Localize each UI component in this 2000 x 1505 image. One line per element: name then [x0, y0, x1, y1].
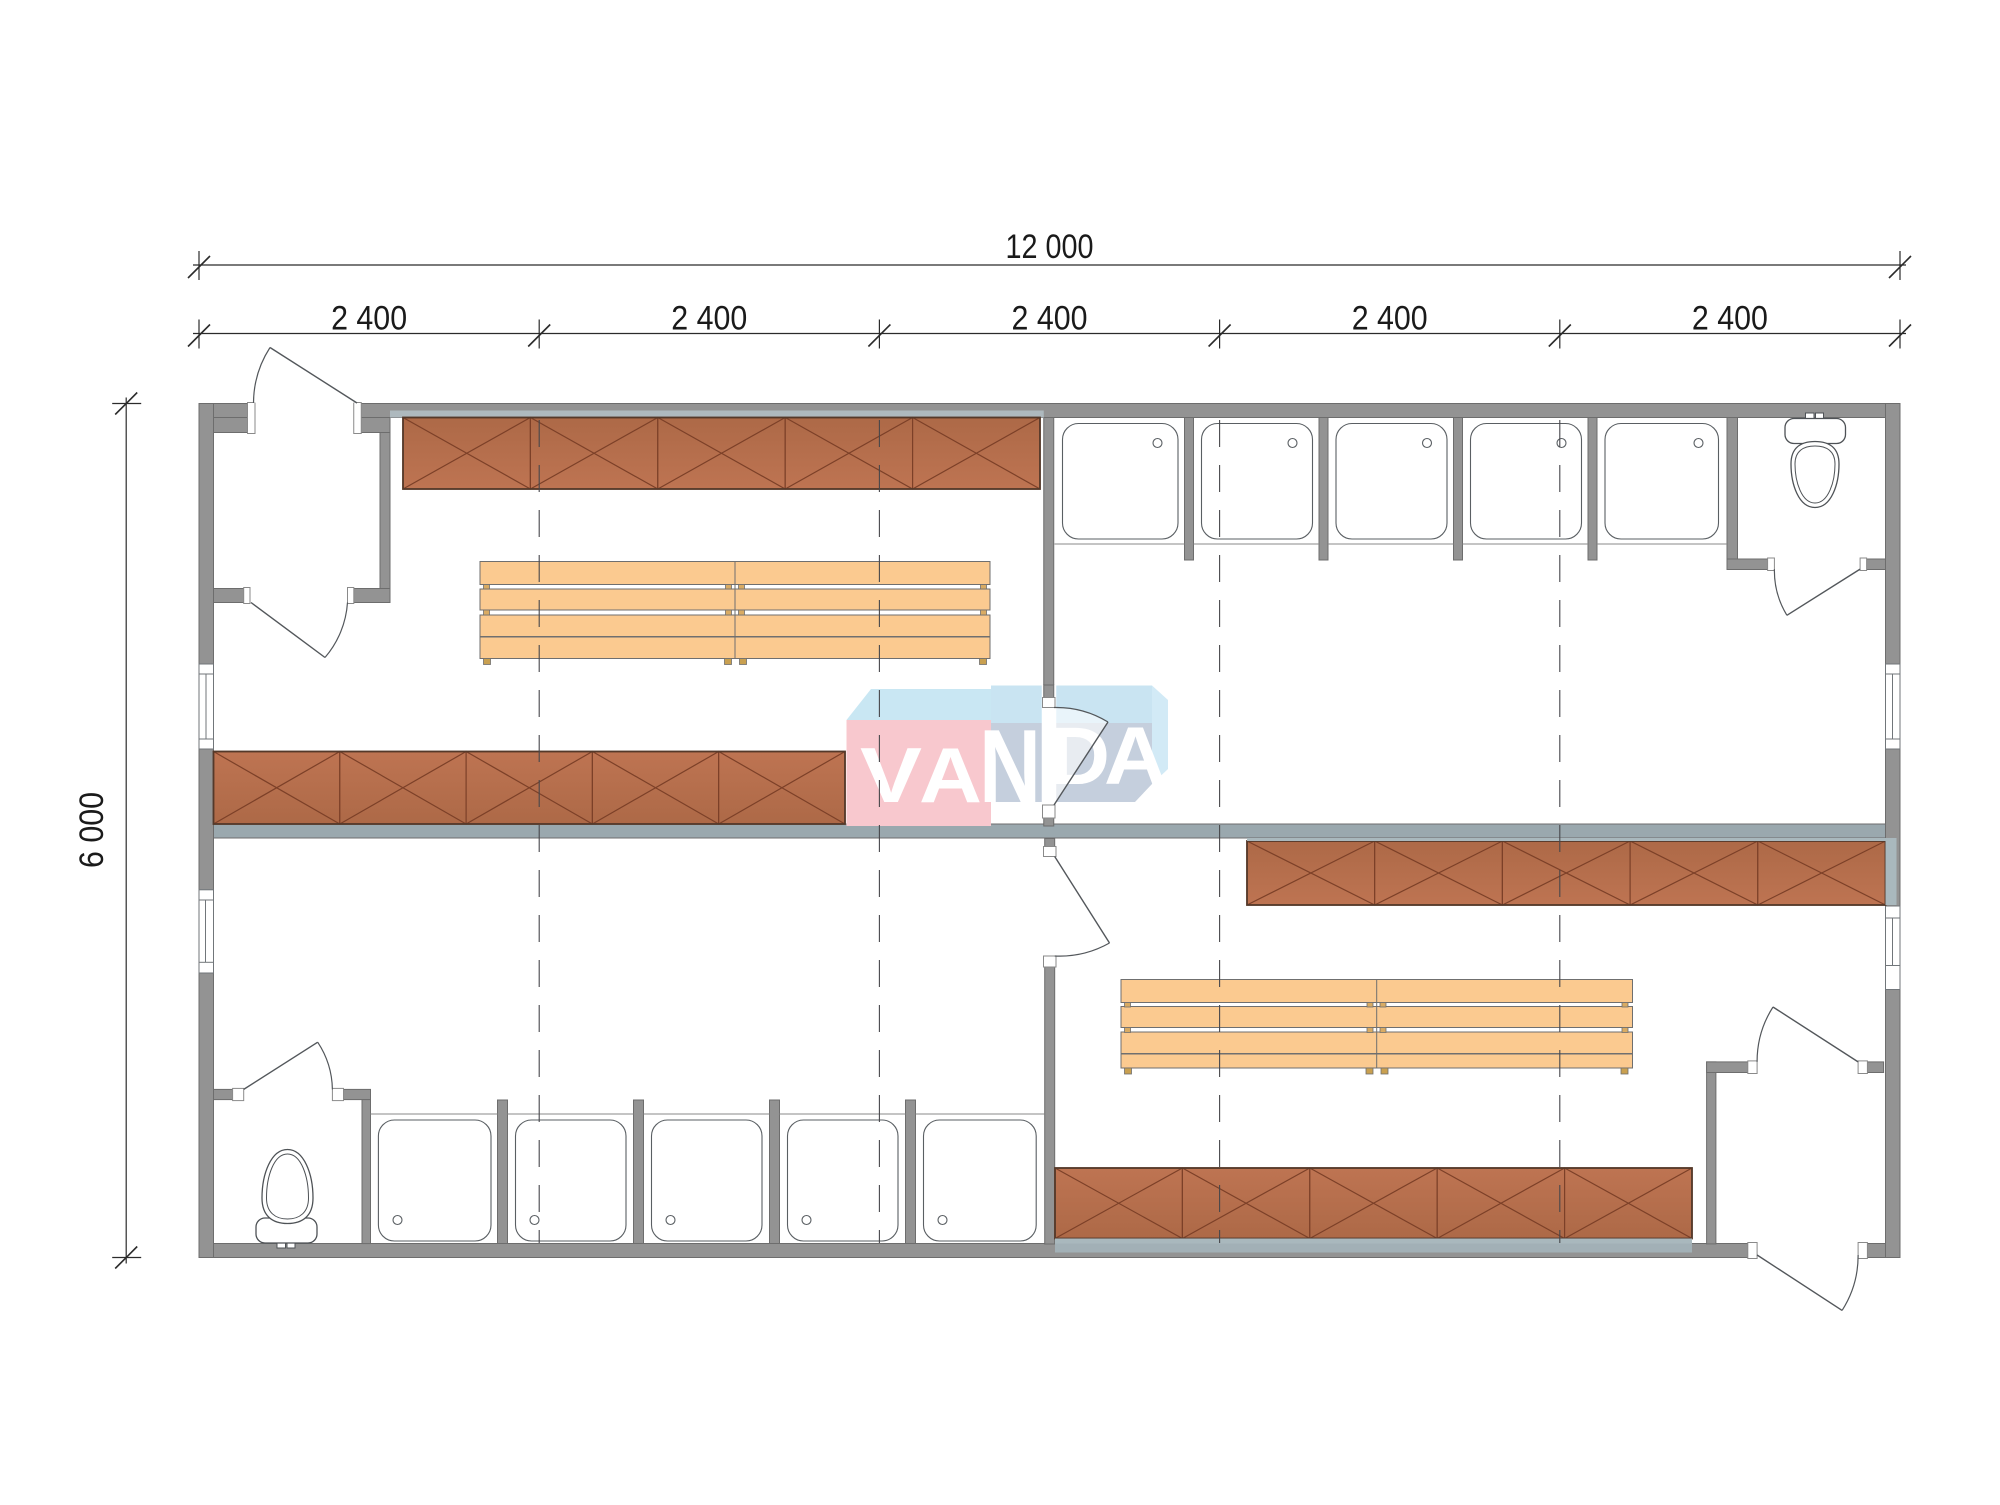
svg-text:N: N	[979, 709, 1041, 825]
svg-text:6 000: 6 000	[73, 792, 111, 868]
svg-text:V: V	[860, 731, 922, 819]
svg-text:2 400: 2 400	[331, 300, 407, 338]
svg-text:2 400: 2 400	[1692, 300, 1768, 338]
svg-text:12 000: 12 000	[1006, 228, 1094, 266]
svg-text:2 400: 2 400	[671, 300, 747, 338]
svg-text:2 400: 2 400	[1012, 300, 1088, 338]
svg-text:A: A	[919, 731, 982, 819]
svg-text:2 400: 2 400	[1352, 300, 1428, 338]
svg-text:A: A	[1104, 711, 1167, 802]
